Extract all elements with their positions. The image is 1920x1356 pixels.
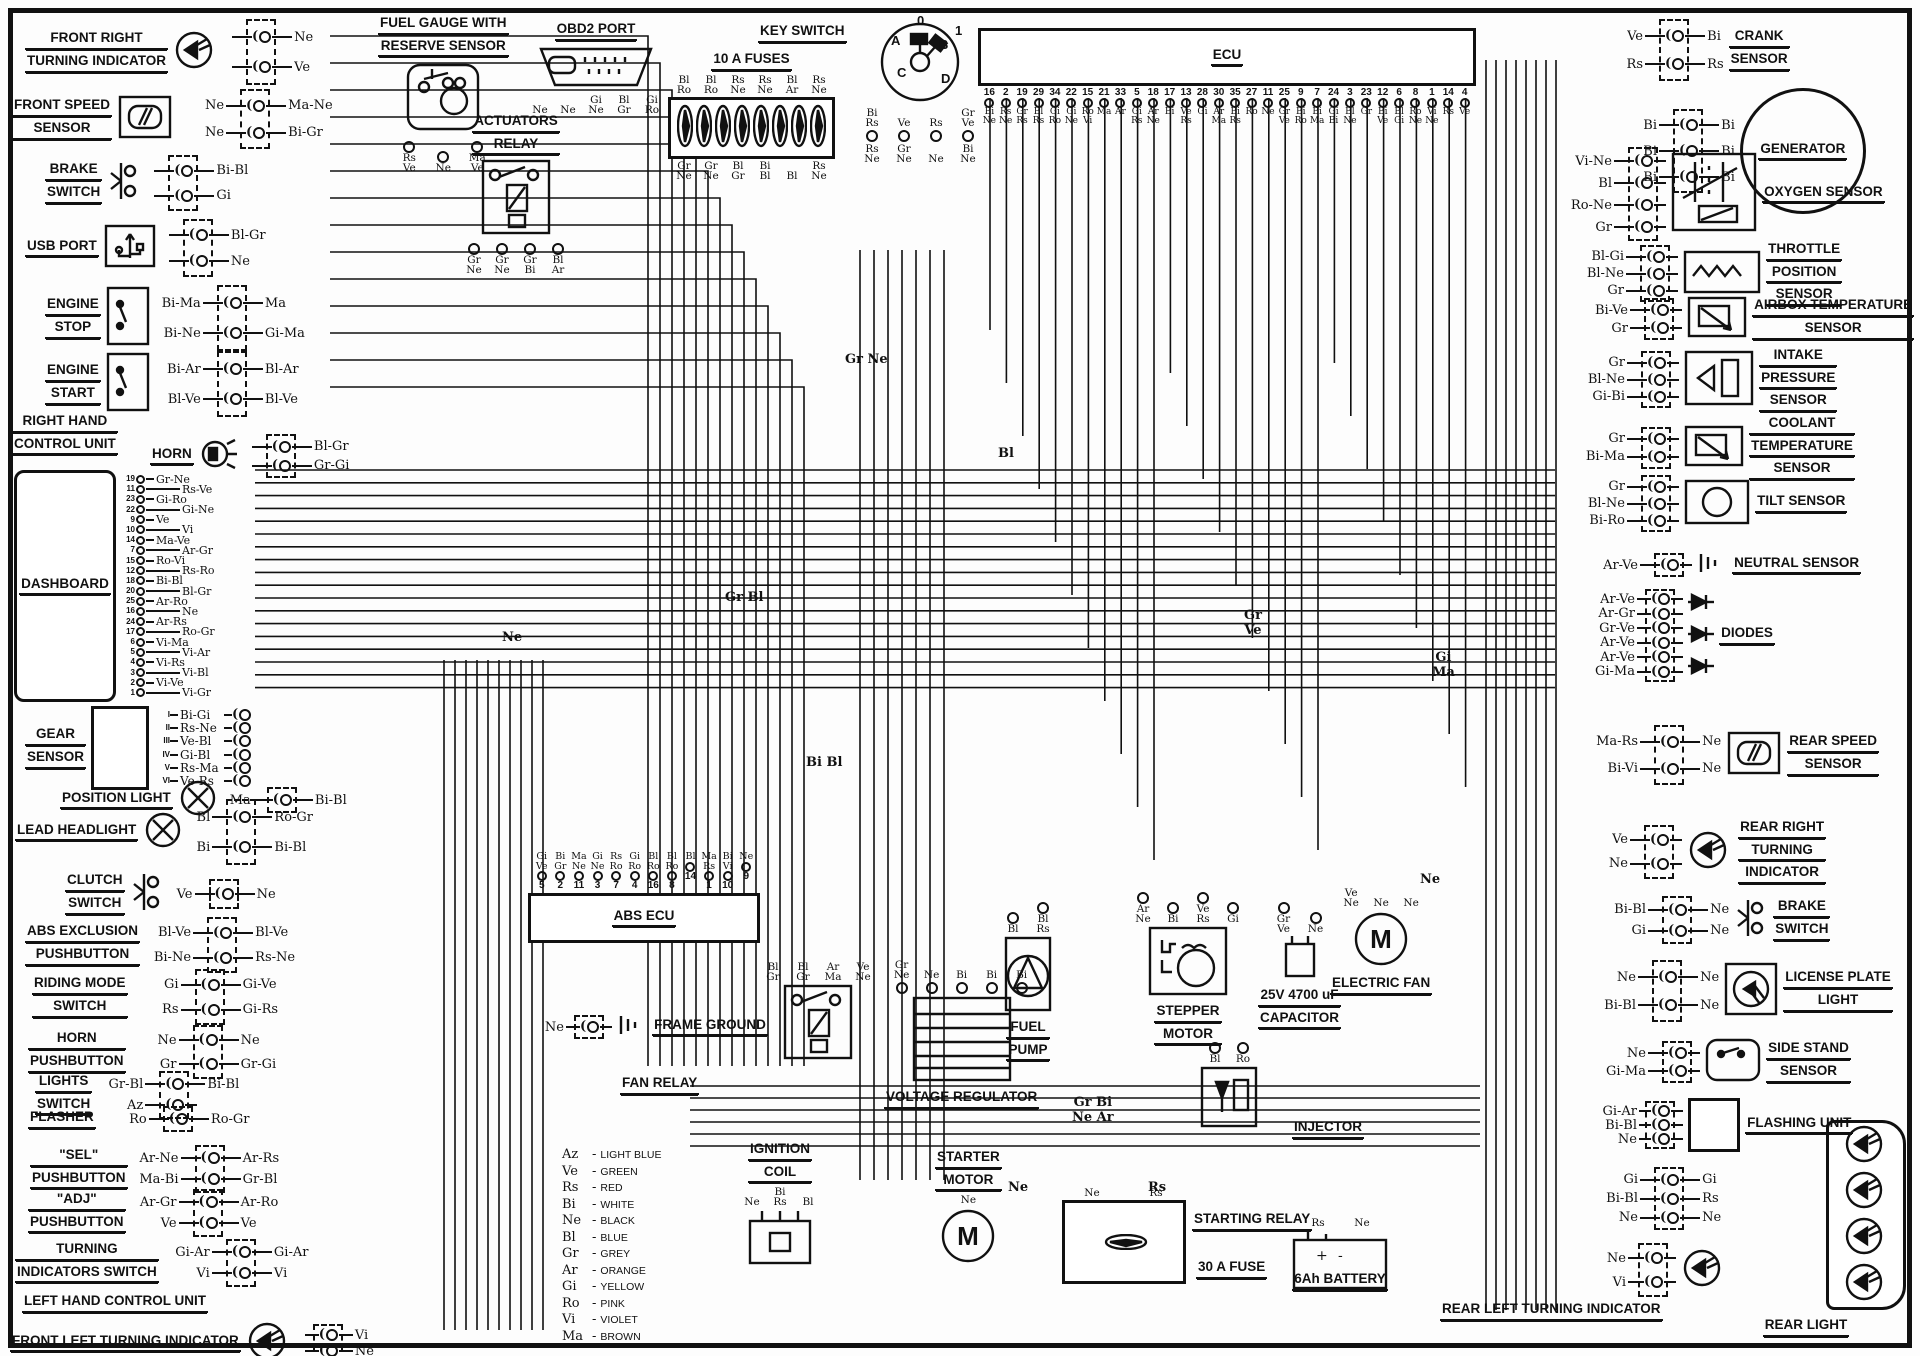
wire-label-stack: Ma <box>1097 108 1112 117</box>
ground-icon <box>617 1010 647 1044</box>
ecu-pin: 11Ne <box>1260 88 1276 126</box>
legend-row: Ro- PINK <box>562 1297 625 1312</box>
brake_switch_front-label: BRAKESWITCH <box>45 160 102 205</box>
wire-label-stack: GiRo <box>1049 108 1061 126</box>
wire-label-part: Gr <box>554 862 566 872</box>
position_light-label: POSITION LIGHT <box>60 789 173 812</box>
oxygen_sensor-wires: Vi-Ne(Bl(Ro-Ne(Gr( <box>1568 150 1666 238</box>
key_switch-label: KEY SWITCH <box>758 22 847 45</box>
wire-label: Bl-Ne <box>1580 266 1626 281</box>
wire-label: Ne <box>239 1033 260 1048</box>
wire-row: (Bl-Gr <box>161 222 266 248</box>
wire-label: Gi-Ar <box>272 1245 309 1260</box>
wire-label-stack: Ne <box>919 970 945 994</box>
wire-label-part: Ne <box>961 1195 976 1205</box>
connector-box <box>209 879 239 909</box>
wire-row: (Gr-Gi <box>244 456 350 475</box>
pin-number: 3 <box>121 668 135 678</box>
led-icon <box>1687 829 1733 875</box>
diode-icon <box>1688 657 1714 679</box>
rear_right_turning_indicator-label-line: INDICATOR <box>1738 863 1826 884</box>
wire-label: Vi <box>1598 1275 1628 1290</box>
wire-label-stack: BiRs <box>858 108 886 142</box>
pin-number: 1 <box>121 688 135 698</box>
wire-label-part: Ve <box>536 862 548 872</box>
wire-label-stack: BlGi <box>1394 108 1404 126</box>
wire-label-stack: Ar <box>1115 108 1126 117</box>
fuses_10a: 10 A FUSESBlRoBlRoRsNeRsNeBlArRsNeGrNeGr… <box>668 50 835 181</box>
ecu-pin: 12BiVe <box>1375 88 1391 126</box>
pin-number: 9 <box>743 872 749 882</box>
wire-label: Bl-Gi <box>1580 249 1626 264</box>
wire-label-stack: BiNe <box>983 108 996 126</box>
fuel_pump-label-line: FUEL <box>1006 1018 1049 1039</box>
wire-label-stack: BiMa <box>1310 108 1325 126</box>
wire-label-stack: VeRs <box>1180 108 1191 126</box>
fuel_gauge-label-line: FUEL GAUGE WITH <box>378 14 509 35</box>
pin-number: 8 <box>1413 88 1419 98</box>
intake_pressure_sensor-wires: Gr(Bl-Ne(Gi-Bi( <box>1585 354 1679 405</box>
dashboard-pin-row: 1Vi-Gr <box>121 688 215 698</box>
connector-pin <box>898 130 910 142</box>
wire-label-part: Ar <box>786 85 799 95</box>
neutral_sensor: Ar-Ve(NEUTRAL SENSOR <box>1598 548 1861 582</box>
wire-label-part: Ne <box>924 970 939 980</box>
horn_pushbutton: HORNPUSHBUTTONNe(NeGr(Gr-Gi <box>28 1028 276 1076</box>
legend-code: Ne <box>562 1214 588 1229</box>
connector-pin <box>136 566 145 575</box>
connector-pin <box>239 775 251 787</box>
connector-pin <box>239 762 251 774</box>
wire-label: Ro <box>101 1112 149 1127</box>
legend-dash: - <box>592 1280 596 1295</box>
engine_start-label-line: START <box>45 384 101 405</box>
connector-pin <box>896 982 908 994</box>
wire-label-part: Rs <box>1311 1218 1324 1228</box>
key-position-label: 0 <box>917 16 924 26</box>
fuses_10a-label-line: 10 A FUSES <box>711 50 791 71</box>
wire-label: Gr <box>1585 431 1627 446</box>
connector-box <box>1640 245 1670 302</box>
horn-label-line: HORN <box>150 445 194 466</box>
pin-number: 28 <box>1197 88 1208 98</box>
connector-paren: ( <box>232 751 238 759</box>
starter_motor: STARTERMOTORNeM <box>935 1148 1002 1269</box>
connector-pin <box>136 587 145 596</box>
abs-ecu-pin: BiGr2 <box>551 852 570 891</box>
abs_exclusion_pushbutton-wires: Bl-Ve(Bl-VeBi-Ne(Rs-Ne <box>145 920 295 970</box>
dashboard-label-line: DASHBOARD <box>19 575 111 596</box>
stepper-icon <box>1148 926 1228 1000</box>
wire-row: (Ne <box>161 248 266 274</box>
wire-label-part: Ar <box>1115 108 1126 117</box>
wire-label: Gr <box>1580 283 1626 298</box>
side_stand_sensor-label-line: SENSOR <box>1766 1062 1851 1083</box>
key_switch: KEY SWITCH01ABCDBiRsVeRsGrVeRsNeGrNeNeBi… <box>858 16 982 164</box>
wire-label-part: Bi <box>1329 117 1339 126</box>
wire-label-stack: BlRo <box>700 75 723 95</box>
junction-label: Ne <box>502 630 522 645</box>
motor-icon: M <box>1352 910 1410 972</box>
connector-pin <box>136 576 145 585</box>
crank_sensor-label: CRANKSENSOR <box>1729 27 1790 72</box>
key_switch-wire-stack: RsNeGrNeNeBiNe <box>858 144 982 164</box>
pin-number: 33 <box>1115 88 1126 98</box>
wire-label: Bi-Ma <box>155 296 203 311</box>
legend-code: Ve <box>562 1165 588 1180</box>
pin-number: 2 <box>1003 88 1009 98</box>
legend-dash: - <box>592 1148 596 1163</box>
junction-label: Gr Bl <box>725 590 763 605</box>
riding_mode_switch: RIDING MODESWITCHGi(Gi-VeRs(Gi-Rs <box>32 972 278 1022</box>
wire-label-stack: BlRo <box>647 852 660 871</box>
wire-label: Rs <box>1615 57 1645 72</box>
pin-number: 7 <box>613 881 619 891</box>
capacitor-label-line: CAPACITOR <box>1258 1009 1341 1030</box>
pin-number: 29 <box>1033 88 1044 98</box>
fuse-icon <box>677 104 693 152</box>
wire-label: Ne <box>1600 856 1630 871</box>
pin-number: IV <box>154 750 170 760</box>
fuel_gauge-label-line: RESERVE SENSOR <box>378 37 509 58</box>
wire-label-part: Ne <box>896 154 911 164</box>
wire-label-stack: Ne <box>1261 108 1274 117</box>
connector-paren: ( <box>232 764 238 772</box>
coolant_temperature_sensor-label-line: TEMPERATURE <box>1749 437 1855 458</box>
license_plate_light: Ne(NeBi-Bl(NeLICENSE PLATELIGHT <box>1590 962 1893 1020</box>
fuse-icon <box>696 104 712 152</box>
wire-label-part: Ne <box>1084 1188 1099 1198</box>
switch-contact-icon <box>130 870 164 918</box>
side_stand_sensor-label: SIDE STANDSENSOR <box>1766 1039 1851 1084</box>
wire-label: Gr-Bl <box>97 1077 145 1092</box>
electric_fan-label-line: ELECTRIC FAN <box>1330 974 1432 995</box>
abs-pin-strip: GiVe5BiGr2MaNe11GiNe3RsRo7GiRo4BlRo16BlR… <box>532 852 755 891</box>
wire-label-stack: Ne <box>1302 910 1330 934</box>
frame_ground: Ne(FRAME GROUND <box>538 1010 768 1044</box>
rear_right_turning_indicator: Ve(Ne(REAR RIGHTTURNINGINDICATOR <box>1600 818 1826 886</box>
wire-label-stack: VeNe <box>850 962 876 982</box>
wire-label-stack: BiNe <box>954 144 982 164</box>
dashboard-label: DASHBOARD <box>19 575 111 598</box>
lead_headlight-label-line: LEAD HEADLIGHT <box>15 821 138 842</box>
throttle_position_sensor-label-line: POSITION <box>1766 263 1842 284</box>
engine_start: ENGINESTARTBi-Ar(Bl-ArBl-Ve(Bl-Ve <box>45 352 299 416</box>
stepper_motor-label-line: STEPPER <box>1154 1002 1221 1023</box>
ecu-label: ECU <box>1211 46 1244 69</box>
wire-label-part: Ve <box>898 118 911 128</box>
wire-segment <box>146 498 154 500</box>
turning_indicators_switch-label: TURNINGINDICATORS SWITCH <box>15 1240 159 1285</box>
brake_switch_rear-label-line: SWITCH <box>1773 920 1830 941</box>
wire-label-part: Rs <box>1036 924 1049 934</box>
wire-segment <box>146 590 180 592</box>
wire-segment <box>146 641 154 643</box>
pin-number: 14 <box>685 872 696 882</box>
wire-label-stack: RsNe <box>999 108 1012 126</box>
junction-label: Gr Ve <box>1244 608 1262 638</box>
fuse-icon <box>791 104 807 152</box>
wire-label-stack: GrNe <box>490 241 514 275</box>
ecu-pin: 13VeRs <box>1178 88 1194 126</box>
injector-label: INJECTOR <box>1292 1118 1364 1141</box>
wire-label: Gi-Ar <box>1595 1104 1639 1119</box>
wire-label: Bl-Ar <box>263 362 299 377</box>
pin-number: 11 <box>1263 88 1274 98</box>
gauge-icon <box>404 61 482 137</box>
riding_mode_switch-label-line: SWITCH <box>32 997 128 1018</box>
wire-label: Gr <box>1568 220 1614 235</box>
connector-box <box>217 285 247 351</box>
connector-pin <box>866 130 878 142</box>
abs-ecu-pin: MaRs1 <box>700 852 719 891</box>
position_light-label-line: POSITION LIGHT <box>60 789 173 810</box>
wire-label-part: Rs <box>1196 914 1209 924</box>
wire-label: Bi-Ar <box>155 362 203 377</box>
coolant_temperature_sensor: Gr(Bi-Ma(COOLANTTEMPERATURESENSOR <box>1585 414 1855 482</box>
wire-segment <box>146 661 154 663</box>
pin-number: 1 <box>1429 88 1435 98</box>
pin-number: 18 <box>121 576 135 586</box>
ecu-pin: 4Ve <box>1456 88 1472 126</box>
fuse-icon <box>1100 1234 1148 1250</box>
junction-label: Gi Ma <box>1432 650 1455 680</box>
led-icon <box>1843 1215 1889 1261</box>
pin-number: 6 <box>1396 88 1402 98</box>
connector-pin <box>136 658 145 667</box>
voltage_regulator-label-line: VOLTAGE REGULATOR <box>884 1088 1039 1109</box>
front_speed_sensor-label: FRONT SPEEDSENSOR <box>12 96 112 141</box>
pin-number: 10 <box>121 525 135 535</box>
wire-label-part: Ne <box>703 171 718 181</box>
wire-label-part: Gi <box>1197 108 1207 117</box>
wire-label: Gr-Ve <box>1595 621 1637 636</box>
rear_left_turning_indicator-label: REAR LEFT TURNING INDICATOR <box>1440 1300 1663 1323</box>
wire-segment <box>224 754 232 756</box>
left_hand_control_unit-label-line: LEFT HAND CONTROL UNIT <box>22 1292 208 1313</box>
license_plate_light-wires: Ne(NeBi-Bl(Ne <box>1590 963 1719 1019</box>
horn_pushbutton-label-line: PUSHBUTTON <box>28 1052 126 1073</box>
adj_pushbutton-wires: Ar-Gr(Ar-RoVe(Ve <box>131 1192 279 1234</box>
wire-label: Ne <box>229 254 250 269</box>
wire-label-part: Ro <box>610 862 623 872</box>
connector-pin <box>956 982 968 994</box>
clutch_switch-wires: Ve(Ne <box>169 882 276 906</box>
engine_stop-wires: Bi-Ma(MaBi-Ne(Gi-Ma <box>155 288 305 348</box>
wire-label-stack: BlRs <box>1030 900 1056 934</box>
legend-dash: - <box>592 1330 596 1345</box>
wire-label: Ve <box>169 887 195 902</box>
starter_motor-label: STARTERMOTOR <box>935 1148 1002 1193</box>
wire-label-part: Ve <box>403 163 416 173</box>
wire-label-stack: RoVi <box>1082 108 1094 126</box>
connector-box <box>1652 960 1682 1022</box>
engine_stop: ENGINESTOPBi-Ma(MaBi-Ne(Gi-Ma <box>45 286 305 350</box>
wire-label: Bi-Bl <box>1590 998 1638 1013</box>
ecu-pin: 1ViNe <box>1424 88 1440 126</box>
wire-label: Ve <box>292 60 310 75</box>
wire-label-stack: BlGr <box>727 161 750 181</box>
abs_ecu-label-line: ABS ECU <box>612 907 677 928</box>
key-position-label: 1 <box>955 26 962 36</box>
wire-label-part: Ne <box>1425 117 1438 126</box>
wire-label-stack: BlNe <box>1343 108 1356 126</box>
abs-ecu-pin: BlRo8 <box>663 852 682 891</box>
wire-label-part: Bl <box>802 1197 813 1207</box>
horn-icon <box>199 436 239 476</box>
ecu-box: ECU <box>978 28 1476 86</box>
wire-label-stack: Ne <box>1398 898 1424 908</box>
rear_light_lamp: REAR LIGHT <box>1826 1120 1906 1339</box>
rear_speed_sensor-label: REAR SPEEDSENSOR <box>1787 732 1879 777</box>
side_stand_sensor-label-line: SIDE STAND <box>1766 1039 1851 1060</box>
fuses_10a-wire-stack: BlRoBlRoRsNeRsNeBlArRsNe <box>673 75 831 95</box>
ecu-pin: 28Gi <box>1194 88 1210 126</box>
turning_indicators_switch-wires: Gi-Ar(Gi-ArVi(Vi <box>164 1242 309 1284</box>
pin-number: 14 <box>1443 88 1454 98</box>
connector-box <box>1654 725 1684 785</box>
flasher-label: FLASHER <box>28 1108 96 1131</box>
wire-label-part: Rs <box>1016 117 1027 126</box>
wire-label: Ve <box>1615 29 1645 44</box>
legend-dash: - <box>592 1165 596 1180</box>
wire-label-part: Ne <box>1354 1218 1369 1228</box>
wire-label-part: Ar <box>552 265 565 275</box>
ecu-pin: 29BlRs <box>1030 88 1046 126</box>
brake_switch_front-label-line: SWITCH <box>45 183 102 204</box>
junction-label: Bl <box>998 446 1014 461</box>
wire-label: Bi <box>188 840 212 855</box>
wire-label-part: Bl <box>786 171 797 181</box>
wire-label: Gr <box>131 1057 179 1072</box>
wire-label: Gi-Ve <box>241 977 277 992</box>
wire-label: Ne <box>353 1344 374 1356</box>
wire-label: Vi <box>272 1266 287 1281</box>
brake_switch_front: BRAKESWITCH(Bi-Bl(Gi <box>45 158 248 208</box>
wire-label: Bi-Gi <box>178 708 224 722</box>
wire-label: Bi-Bl <box>1592 1191 1640 1206</box>
wire-label-stack: BlGr <box>760 962 786 982</box>
airbox_temperature_sensor-wires: Bi-Ve(Gr( <box>1588 301 1682 337</box>
abs-ecu-pin: BlRo16 <box>644 852 663 891</box>
sel_pushbutton-wires: Ar-Ne(Ar-RsMa-Bi(Gr-Bl <box>133 1148 280 1190</box>
wire-label-stack: GrBi <box>518 241 542 275</box>
wire-label-part: Ne <box>739 852 753 862</box>
connector-box <box>313 1324 343 1356</box>
ecu-pin-strip: 16BiNe2RsNe19GrRs29BlRs34GiRo22GiNe15RoV… <box>981 88 1473 126</box>
diode-icon <box>1688 593 1714 615</box>
wire-label: Gr-Gi <box>239 1057 277 1072</box>
gear-pin-row: VIVe-Rs( <box>154 775 252 788</box>
legend-code: Ma <box>562 1330 588 1345</box>
connector-pin <box>136 627 145 636</box>
abs-ecu-pin: Bl14 <box>681 852 700 891</box>
starting_relay-wire-stack: NeRs <box>1062 1188 1186 1198</box>
wire-segment <box>146 692 180 694</box>
wire-label: Gr <box>1585 355 1627 370</box>
wire-label-stack: GrVe <box>1270 900 1298 934</box>
wire-label-part: Ne <box>1373 898 1388 908</box>
legend-color-name: LIGHT BLUE <box>600 1148 661 1163</box>
legend-color-name: BLUE <box>600 1231 627 1246</box>
wire-label: Ne <box>1595 1132 1639 1147</box>
side_stand_sensor: Ne(Gi-Ma(SIDE STANDSENSOR <box>1600 1038 1851 1086</box>
wire-label: Bi-Bl <box>214 163 248 178</box>
legend-row: Ne- BLACK <box>562 1214 635 1229</box>
wire-label-stack: BlRs <box>1033 108 1044 126</box>
engine_stop-label-line: ENGINE <box>45 295 101 316</box>
connector-pin <box>136 556 145 565</box>
pin-number: 16 <box>648 881 659 891</box>
wire-label-part: Ne <box>1261 108 1274 117</box>
connector-pin <box>136 525 145 534</box>
horn-wires: (Bl-Gr(Gr-Gi <box>244 437 350 475</box>
connector-pin <box>136 648 145 657</box>
legend-row: Az- LIGHT BLUE <box>562 1148 661 1163</box>
wire-label-part: Rs <box>1131 117 1142 126</box>
legend-row: Gi- YELLOW <box>562 1280 644 1295</box>
wire-label-stack: Ne <box>922 154 950 164</box>
connector-box <box>195 969 225 1025</box>
clutch_switch: CLUTCHSWITCHVe(Ne <box>65 870 276 918</box>
front_right_turning_indicator-label-line: FRONT RIGHT <box>25 29 168 50</box>
ecu-pin: 22GiNe <box>1063 88 1079 126</box>
wire-label-part: Ma <box>824 972 841 982</box>
wire-label: Ne <box>1708 902 1729 917</box>
wire-label: Bl-Gr <box>312 439 349 454</box>
tilt_sensor: Gr(Bl-Ne(Bi-Ro(TILT SENSOR <box>1585 478 1847 529</box>
throttle_position_sensor-wires: Bl-Gi(Bl-Ne(Gr( <box>1580 248 1678 299</box>
svg-text:M: M <box>1370 924 1392 954</box>
legend-color-name: PINK <box>600 1297 625 1312</box>
wire-label: Ne <box>1708 923 1729 938</box>
wire-label-stack: BlGr <box>612 95 636 115</box>
legend-dash: - <box>592 1181 596 1196</box>
wire-label: Ro-Ne <box>1568 198 1614 213</box>
generator-label: GENERATOR <box>1758 140 1847 163</box>
wire-label: Gr-Gi <box>312 458 350 473</box>
right_hand_control_unit-label-line: CONTROL UNIT <box>12 435 118 456</box>
wire-label-stack: GrVe <box>1279 108 1291 126</box>
brake_switch_rear-wires: Bi-Bl(NeGi(Ne <box>1600 899 1729 941</box>
led-icon <box>1843 1261 1889 1307</box>
wire-label-part: Ne <box>1343 898 1358 908</box>
wire-label: Ar-Gr <box>131 1195 179 1210</box>
wire-label-stack: GrRs <box>1016 108 1028 126</box>
wire-label: Bl-Ve <box>155 392 203 407</box>
brake_switch_rear-label: BRAKESWITCH <box>1773 897 1830 942</box>
sidestand-icon <box>1705 1038 1761 1086</box>
usb_port-label: USB PORT <box>25 237 99 260</box>
ecu-pin: 6BlGi <box>1391 88 1407 126</box>
wire-label-part: Ma <box>1310 117 1325 126</box>
legend-code: Ro <box>562 1297 588 1312</box>
wire-label: Bi-Bl <box>272 840 306 855</box>
injector-label-line: INJECTOR <box>1292 1118 1364 1139</box>
wire-label-stack: Gr <box>1361 108 1373 117</box>
wire-label-part: Ve <box>1279 117 1290 126</box>
pin-number: 12 <box>121 566 135 576</box>
connector-box <box>1654 1167 1684 1230</box>
ecu-pin: 9BiRo <box>1293 88 1309 126</box>
coolant_temperature_sensor-label: COOLANTTEMPERATURESENSOR <box>1749 414 1855 482</box>
horn-label: HORN <box>150 445 194 468</box>
wire-segment <box>146 672 180 674</box>
wire-label-stack: BiRs <box>1229 108 1240 126</box>
abs-ecu-box: ABS ECU <box>528 893 760 943</box>
brake_switch_front-wires: (Bi-Bl(Gi <box>146 158 248 208</box>
connector-box <box>1641 427 1671 469</box>
